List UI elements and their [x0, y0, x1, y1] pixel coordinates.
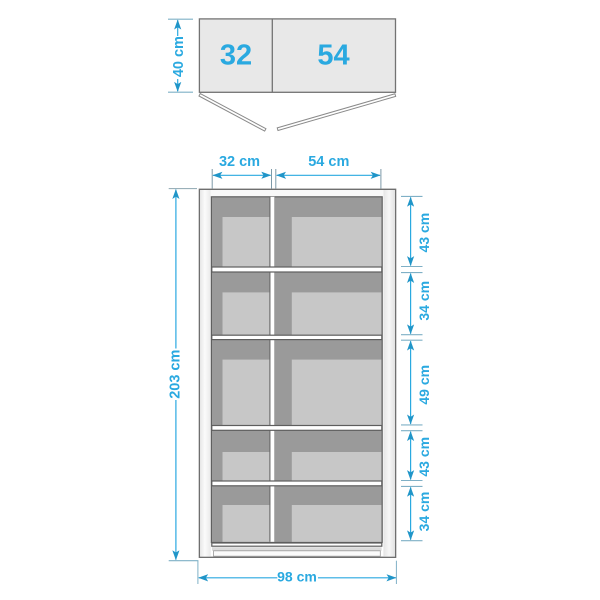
svg-text:34 cm: 34 cm: [416, 281, 432, 321]
svg-text:43 cm: 43 cm: [416, 213, 432, 253]
svg-text:34 cm: 34 cm: [416, 492, 432, 532]
svg-text:32: 32: [220, 40, 252, 72]
svg-text:32 cm: 32 cm: [219, 154, 260, 170]
svg-text:40 cm: 40 cm: [171, 36, 187, 77]
svg-text:98 cm: 98 cm: [277, 568, 317, 584]
svg-text:54 cm: 54 cm: [308, 154, 349, 170]
svg-text:49 cm: 49 cm: [416, 365, 432, 405]
svg-text:203 cm: 203 cm: [167, 350, 183, 399]
svg-text:54: 54: [317, 39, 349, 71]
svg-text:43 cm: 43 cm: [416, 437, 432, 477]
